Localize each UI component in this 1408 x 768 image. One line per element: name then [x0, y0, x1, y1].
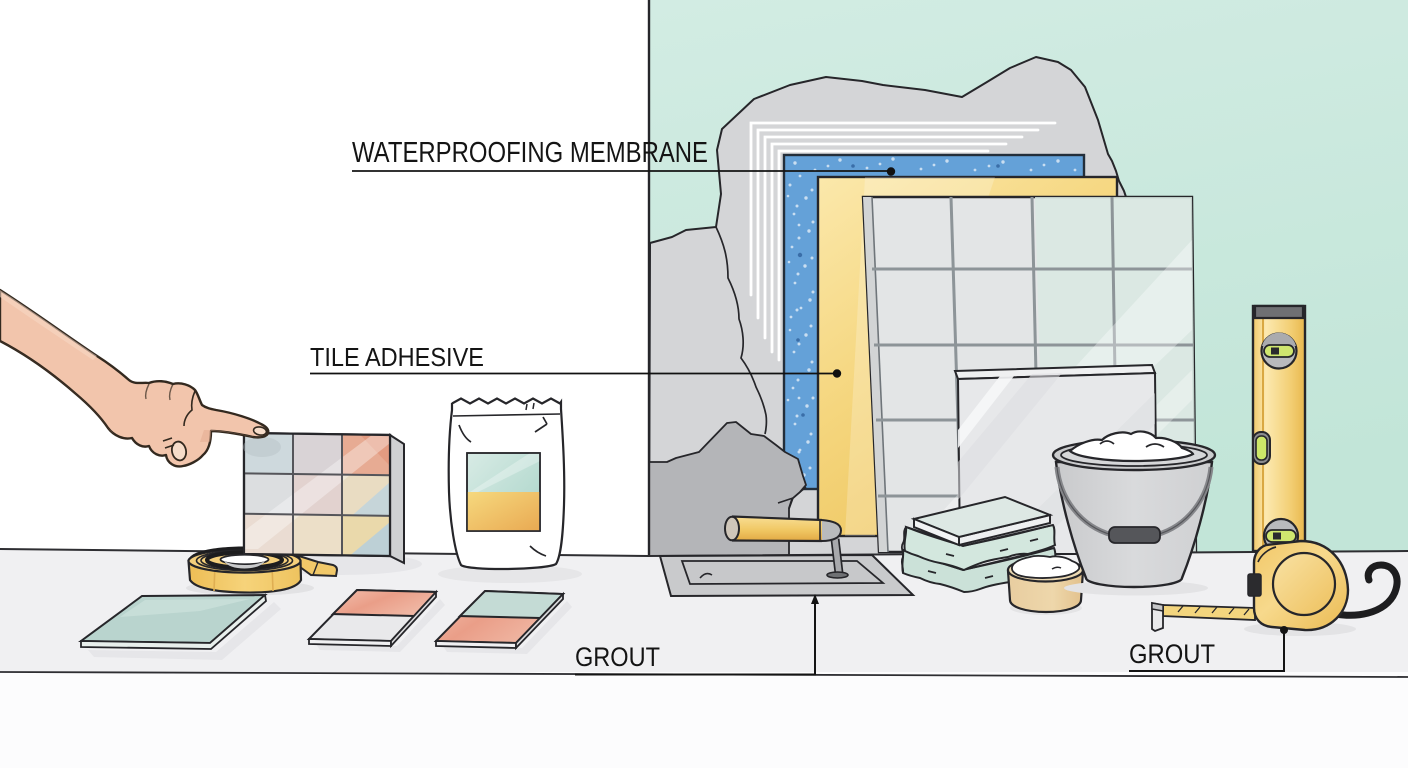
svg-text:WATERPROOFING MEMBRANE: WATERPROOFING MEMBRANE	[352, 137, 708, 169]
svg-text:GROUT: GROUT	[575, 642, 660, 672]
svg-text:TILE ADHESIVE: TILE ADHESIVE	[310, 344, 484, 372]
svg-text:GROUT: GROUT	[1129, 639, 1215, 669]
